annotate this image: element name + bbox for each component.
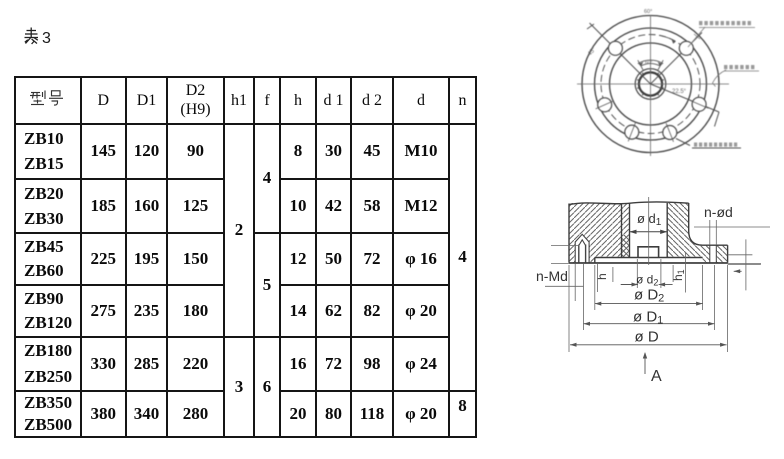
svg-text:ø D1: ø D1	[633, 309, 663, 327]
svg-text:3: 3	[42, 30, 51, 47]
svg-text:60°: 60°	[645, 60, 653, 66]
svg-text:n-ød: n-ød	[704, 204, 733, 220]
svg-text:60°: 60°	[644, 9, 652, 15]
svg-text:22.5°: 22.5°	[672, 89, 687, 95]
svg-text:ø D2: ø D2	[634, 287, 664, 305]
svg-text:ø d1: ø d1	[637, 211, 662, 228]
svg-text:h: h	[595, 273, 609, 280]
svg-text:A: A	[651, 368, 662, 385]
svg-text:ø d2: ø d2	[636, 273, 658, 288]
svg-text:45°: 45°	[587, 46, 598, 57]
svg-text:ø D: ø D	[635, 329, 659, 346]
svg-text:n-Md: n-Md	[536, 268, 568, 284]
